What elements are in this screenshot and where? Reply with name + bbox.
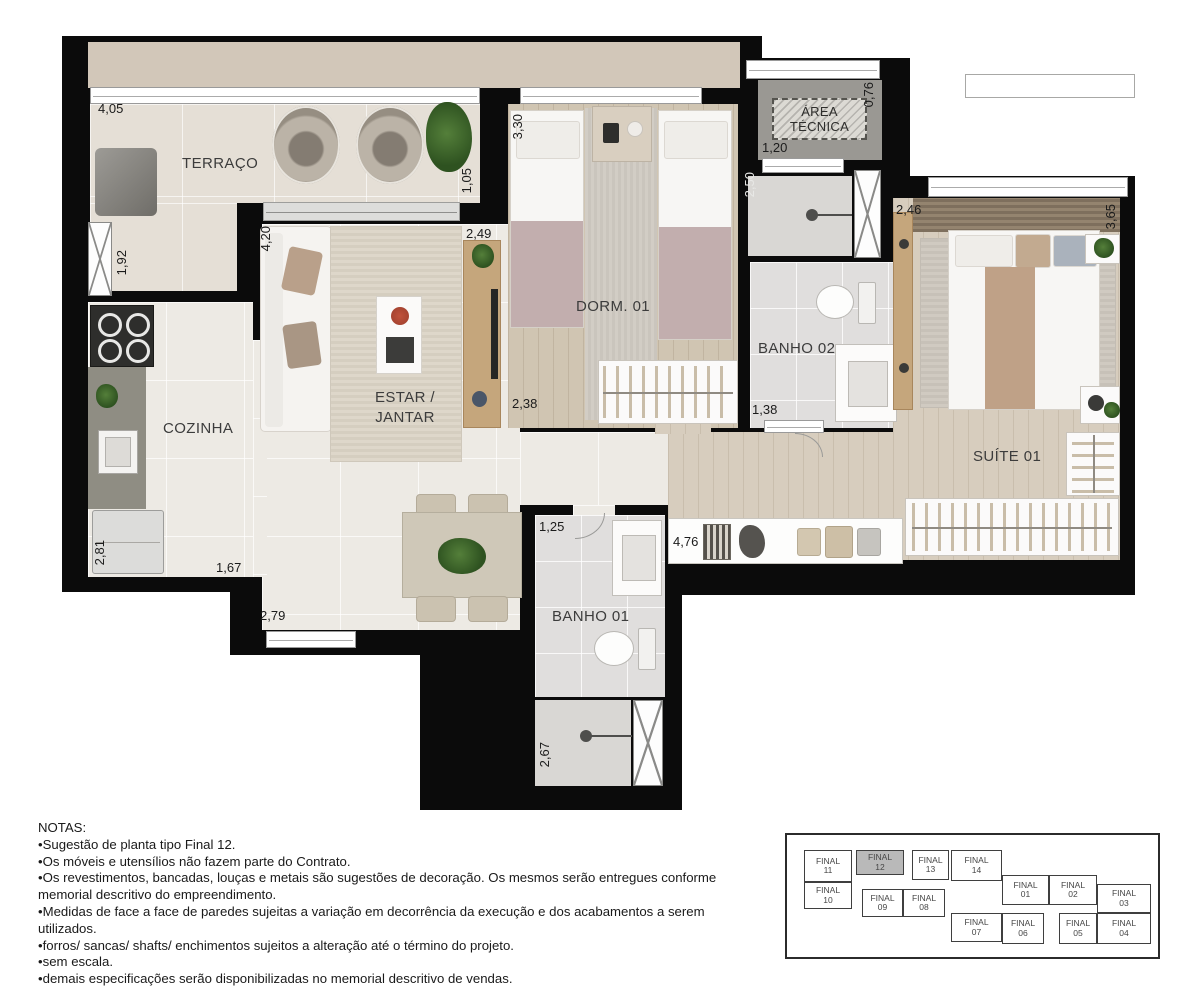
dining-chair-icon (468, 596, 508, 622)
keyplan-unit-final-13: FINAL13 (912, 850, 949, 880)
dim-estar-bottom: 2,79 (260, 608, 285, 623)
toilet-tank (638, 628, 656, 670)
door-frame-line (269, 640, 353, 641)
pillow (1015, 234, 1051, 268)
banho02-door (764, 420, 824, 433)
keyplan-unit-final-05: FINAL05 (1059, 913, 1097, 944)
dining-chair-icon (416, 596, 456, 622)
terraco-sliding-door (263, 202, 460, 221)
suite01-label: SUÍTE 01 (973, 448, 1041, 465)
vanity-basin (848, 361, 888, 407)
bathroom-vanity-icon (612, 520, 662, 596)
estar-label-line2: JANTAR (345, 408, 465, 428)
dim-estar-height: 4,20 (258, 226, 273, 251)
decor-item (899, 239, 909, 249)
keyplan-unit-final-10: FINAL10 (804, 882, 852, 909)
suite-wardrobe-icon (905, 498, 1119, 556)
plant-icon (1104, 402, 1120, 418)
pillow (516, 121, 580, 159)
keyplan-unit-final-02: FINAL02 (1049, 875, 1097, 905)
tv-sideboard-icon (463, 240, 501, 428)
terraco-bench-icon (95, 148, 157, 216)
dorm-wardrobe-icon (598, 360, 738, 424)
dim-terraco-left: 1,92 (114, 250, 129, 275)
dim-dorm-width: 2,38 (512, 396, 537, 411)
terraco-window (90, 87, 480, 104)
notes-line: •Os revestimentos, bancadas, louças e me… (38, 870, 718, 887)
keyplan-unit-final-01: FINAL01 (1002, 875, 1049, 905)
keyplan-unit-final-07: FINAL07 (951, 913, 1002, 942)
speaker-icon (472, 391, 487, 407)
door-frame-line (767, 427, 821, 428)
armchair-icon (356, 106, 424, 184)
coffee-table-icon (376, 296, 422, 374)
notes-line: •Os móveis e utensílios não fazem parte … (38, 854, 718, 871)
suite-closet-icon (1066, 432, 1120, 496)
keyplan: FINAL11 FINAL12 FINAL13 FINAL14 FINAL10 … (785, 833, 1160, 959)
sofa-pillow (282, 321, 322, 369)
keyplan-unit-final-09: FINAL09 (862, 889, 903, 917)
nightstand-icon (592, 106, 652, 162)
headboard-panel (913, 198, 1120, 232)
toilet-icon (594, 628, 660, 668)
dim-hall-width: 4,76 (673, 534, 698, 549)
decor-item (899, 363, 909, 373)
dim-suite-top: 2,46 (896, 202, 921, 217)
decor-item (627, 121, 643, 137)
dim-banho02-width: 1,38 (752, 402, 777, 417)
notes-block: NOTAS: •Sugestão de planta tipo Final 12… (38, 820, 718, 988)
blanket (659, 227, 731, 339)
hall-floor (520, 432, 668, 505)
exterior-slab (88, 42, 740, 88)
keyplan-unit-final-12: FINAL12 (856, 850, 904, 875)
vanity-basin (622, 535, 656, 581)
decor-box (857, 528, 881, 556)
dim-cozinha-height: 2,81 (92, 540, 107, 565)
tray (386, 337, 414, 363)
dim-cozinha-width: 1,67 (216, 560, 241, 575)
duct-shaft-icon (88, 222, 112, 296)
suite-desk-icon (893, 212, 913, 410)
double-bed-icon (948, 230, 1100, 410)
door-frame-line (765, 166, 841, 167)
burner-icon (98, 339, 122, 363)
kitchen-sink-icon (98, 430, 138, 474)
dim-area-tecnica-depth: 0,76 (861, 82, 876, 107)
decor-box (797, 528, 821, 556)
keyplan-unit-final-14: FINAL14 (951, 850, 1002, 881)
notes-line: •Sugestão de planta tipo Final 12. (38, 837, 718, 854)
shower-arm (590, 735, 632, 737)
sink-basin (105, 437, 131, 467)
floor-plan-page: ÁREA TÉCNICA (0, 0, 1200, 988)
keyplan-unit-final-11: FINAL11 (804, 850, 852, 882)
dim-area-tecnica-width: 1,20 (762, 140, 787, 155)
dorm01-label: DORM. 01 (576, 298, 650, 315)
duct-shaft-icon (854, 170, 881, 258)
area-tecnica-label-line1: ÁREA (801, 104, 838, 119)
burner-icon (126, 339, 150, 363)
area-tecnica-label-line2: TÉCNICA (790, 119, 849, 134)
keyplan-unit-final-03: FINAL03 (1097, 884, 1151, 913)
terraco-label: TERRAÇO (182, 155, 258, 172)
burner-icon (98, 313, 122, 337)
dorm01-window (520, 87, 702, 104)
tv-icon (491, 289, 498, 379)
closet-rail (1093, 435, 1095, 492)
notes-line: •Medidas de face a face de paredes sujei… (38, 904, 718, 938)
window-frame-line (523, 96, 699, 97)
headphones-icon (1088, 395, 1104, 411)
dim-terraco-right: 1,05 (459, 168, 474, 193)
terraco-floor-extension (90, 203, 237, 291)
estar-label-line1: ESTAR / (345, 388, 465, 408)
dim-dorm-height: 3,30 (510, 114, 525, 139)
cozinha-label: COZINHA (163, 420, 233, 437)
plant-icon (1094, 238, 1114, 258)
dim-estar-top: 2,49 (466, 226, 491, 241)
hall-credenza-icon (668, 518, 903, 564)
notes-line: memorial descritivo do empreendimento. (38, 887, 718, 904)
decor-box (825, 526, 853, 558)
sofa-pillow (281, 246, 323, 296)
neighbor-unit-outline (965, 74, 1135, 98)
toilet-bowl (816, 285, 854, 319)
keyplan-unit-final-08: FINAL08 (903, 889, 945, 917)
banho01-label: BANHO 01 (552, 608, 629, 625)
burner-icon (126, 313, 150, 337)
armchair-icon (272, 106, 340, 184)
shower-head-icon (806, 208, 852, 222)
basket-icon (739, 525, 765, 558)
area-tecnica-box: ÁREA TÉCNICA (772, 98, 867, 140)
sofa-backrest (265, 233, 283, 427)
wardrobe-rail (603, 392, 733, 394)
notes-line: •forros/ sancas/ shafts/ enchimentos suj… (38, 938, 718, 955)
banho02-label: BANHO 02 (758, 340, 835, 357)
plant-icon (426, 102, 472, 172)
sofa-icon (260, 226, 332, 432)
books-icon (703, 524, 731, 560)
pillow (664, 121, 728, 159)
single-bed-icon (510, 110, 584, 328)
plant-icon (472, 244, 494, 268)
dim-banho01-width: 1,25 (539, 519, 564, 534)
area-tecnica-louver (746, 60, 880, 79)
single-bed-icon (658, 110, 732, 340)
dim-suite-right: 3,65 (1103, 204, 1118, 229)
window-frame-line (931, 187, 1125, 188)
dorm01-door-opening (655, 424, 711, 434)
notes-line: NOTAS: (38, 820, 718, 837)
toilet-bowl (594, 631, 634, 666)
corridor-floor (668, 432, 905, 518)
duct-shaft-icon (633, 700, 663, 786)
suite01-window (928, 177, 1128, 197)
shower-arm (816, 214, 852, 216)
stove-icon (90, 305, 154, 367)
balcony-door (266, 631, 356, 648)
dim-banho02-height: 2,50 (742, 172, 757, 197)
plant-icon (96, 384, 118, 408)
bathroom-vanity-icon (835, 344, 897, 422)
notes-line: •demais especificações serão disponibili… (38, 971, 718, 988)
dim-banho01-shower-height: 2,67 (537, 742, 552, 767)
window-frame-line (93, 96, 477, 97)
plant-icon (438, 538, 486, 574)
keyplan-unit-final-06: FINAL06 (1002, 913, 1044, 944)
estar-jantar-label: ESTAR / JANTAR (345, 388, 465, 428)
shower-head-icon (580, 728, 632, 744)
banho02-shower-door (762, 158, 844, 173)
pillow (955, 235, 1013, 267)
keyplan-unit-final-04: FINAL04 (1097, 913, 1151, 944)
bed-throw (985, 267, 1035, 409)
flower-bowl (391, 307, 409, 325)
wardrobe-rail (912, 527, 1111, 529)
toilet-icon (816, 282, 880, 322)
dim-terraco-width: 4,05 (98, 101, 123, 116)
toilet-tank (858, 282, 876, 324)
door-frame-line (266, 212, 457, 213)
blanket (511, 221, 583, 327)
lamp-icon (603, 123, 619, 143)
window-frame-line (749, 70, 877, 71)
notes-line: •sem escala. (38, 954, 718, 971)
